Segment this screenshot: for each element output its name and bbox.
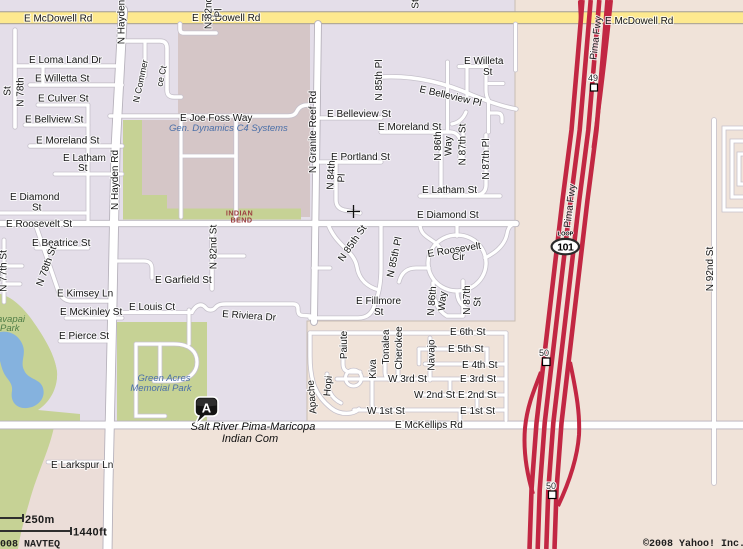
svg-text:50: 50 [539, 348, 549, 358]
svg-text:N 85th Pl: N 85th Pl [374, 59, 385, 100]
svg-text:St: St [3, 86, 14, 96]
svg-text:St: St [32, 203, 42, 214]
svg-text:E McKinley St: E McKinley St [60, 307, 122, 318]
svg-text:E Portland St: E Portland St [331, 152, 390, 163]
svg-text:Cir: Cir [452, 252, 465, 263]
svg-text:St: St [483, 67, 493, 78]
svg-text:E Fillmore: E Fillmore [356, 296, 401, 307]
svg-text:Kiva: Kiva [368, 359, 379, 379]
svg-text:N 87th: N 87th [462, 285, 473, 314]
svg-text:E Diamond St: E Diamond St [417, 210, 479, 221]
svg-text:St: St [411, 0, 422, 9]
svg-text:E McDowell Rd: E McDowell Rd [605, 16, 673, 27]
svg-text:1440ft: 1440ft [73, 527, 107, 539]
svg-text:St: St [374, 307, 384, 318]
svg-text:E Loma Land Dr: E Loma Land Dr [29, 55, 102, 66]
svg-text:E McDowell Rd: E McDowell Rd [192, 13, 260, 24]
svg-text:E Louis Ct: E Louis Ct [129, 302, 175, 313]
svg-text:E Larkspur Ln: E Larkspur Ln [51, 460, 113, 471]
svg-text:N 86th: N 86th [433, 131, 444, 160]
svg-text:E Roosevelt St: E Roosevelt St [6, 219, 72, 230]
svg-text:E 4th St: E 4th St [462, 360, 498, 371]
svg-text:E 3rd St: E 3rd St [460, 374, 496, 385]
svg-text:N 77th St: N 77th St [0, 250, 10, 292]
svg-text:E Diamond: E Diamond [10, 192, 59, 203]
svg-text:Park: Park [0, 323, 21, 334]
svg-text:W 1st St: W 1st St [367, 406, 405, 417]
svg-text:Salt River Pima-Maricopa: Salt River Pima-Maricopa [191, 421, 316, 433]
svg-text:©2008 NAVTEQ: ©2008 NAVTEQ [0, 539, 60, 549]
svg-text:Navajo: Navajo [427, 339, 438, 371]
svg-text:E Willeta: E Willeta [464, 56, 504, 67]
svg-text:Pl: Pl [336, 173, 347, 182]
svg-text:W 3rd St: W 3rd St [388, 374, 427, 385]
svg-text:50: 50 [546, 481, 556, 491]
svg-text:A: A [202, 401, 212, 416]
svg-text:Way: Way [437, 291, 450, 312]
svg-text:©2008 Yahoo! Inc.: ©2008 Yahoo! Inc. [643, 538, 743, 549]
svg-text:250m: 250m [25, 514, 55, 526]
svg-text:E 2nd St: E 2nd St [458, 390, 497, 401]
svg-text:N Hayden Rd: N Hayden Rd [110, 150, 121, 210]
svg-text:Hopi: Hopi [322, 375, 335, 396]
svg-text:Tonalea: Tonalea [381, 329, 392, 364]
svg-text:49: 49 [588, 73, 598, 83]
svg-text:W 2nd St: W 2nd St [414, 390, 455, 401]
svg-text:BEND: BEND [231, 216, 253, 225]
svg-text:E Belleview St: E Belleview St [327, 109, 391, 120]
svg-text:N Granite Reef Rd: N Granite Reef Rd [308, 91, 319, 173]
svg-text:LOOP: LOOP [558, 232, 574, 238]
svg-text:Memorial Park: Memorial Park [130, 383, 192, 394]
svg-text:Cherokee: Cherokee [394, 326, 405, 370]
svg-text:Paiute: Paiute [339, 330, 350, 359]
svg-text:E Pierce St: E Pierce St [59, 331, 109, 342]
svg-text:Gen. Dynamics C4 Systems: Gen. Dynamics C4 Systems [169, 123, 288, 134]
svg-text:101: 101 [557, 242, 574, 254]
svg-text:E Kimsey Ln: E Kimsey Ln [57, 289, 113, 300]
svg-text:E 5th St: E 5th St [448, 344, 484, 355]
svg-text:E Willetta St: E Willetta St [35, 74, 90, 85]
svg-text:E McKellips Rd: E McKellips Rd [395, 420, 463, 431]
svg-text:E Latham St: E Latham St [422, 185, 477, 196]
svg-text:N 78th: N 78th [16, 77, 27, 106]
svg-text:N 82nd St: N 82nd St [209, 225, 220, 270]
svg-text:E McDowell Rd: E McDowell Rd [24, 14, 92, 25]
svg-text:E 6th St: E 6th St [450, 327, 486, 338]
svg-text:E Bellview St: E Bellview St [25, 115, 84, 126]
svg-text:N 92nd St: N 92nd St [705, 247, 716, 292]
svg-text:N Hayden: N Hayden [117, 0, 128, 44]
svg-text:E Beatrice St: E Beatrice St [32, 238, 91, 249]
svg-text:E Moreland St: E Moreland St [36, 136, 100, 147]
svg-text:E Garfield St: E Garfield St [155, 275, 212, 286]
svg-text:N 87th Pl: N 87th Pl [481, 138, 492, 179]
svg-text:E 1st St: E 1st St [460, 406, 495, 417]
svg-text:N 87th St: N 87th St [458, 123, 469, 165]
svg-text:St: St [473, 297, 484, 307]
svg-text:Indian Com: Indian Com [222, 433, 278, 445]
svg-text:E Culver St: E Culver St [38, 94, 89, 105]
svg-text:St: St [78, 163, 88, 174]
svg-text:Pl: Pl [214, 9, 225, 18]
svg-text:Way: Way [444, 136, 455, 156]
